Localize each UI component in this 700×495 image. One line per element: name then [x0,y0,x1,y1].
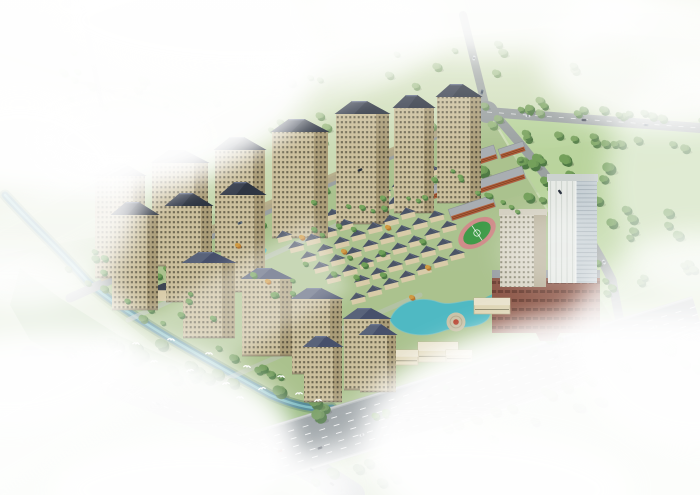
residential-tower [303,336,344,403]
tall-office-tower [547,174,598,182]
aerial-rendering-image [0,0,700,495]
clubhouse-building [474,298,510,314]
scene-svg [0,0,700,495]
